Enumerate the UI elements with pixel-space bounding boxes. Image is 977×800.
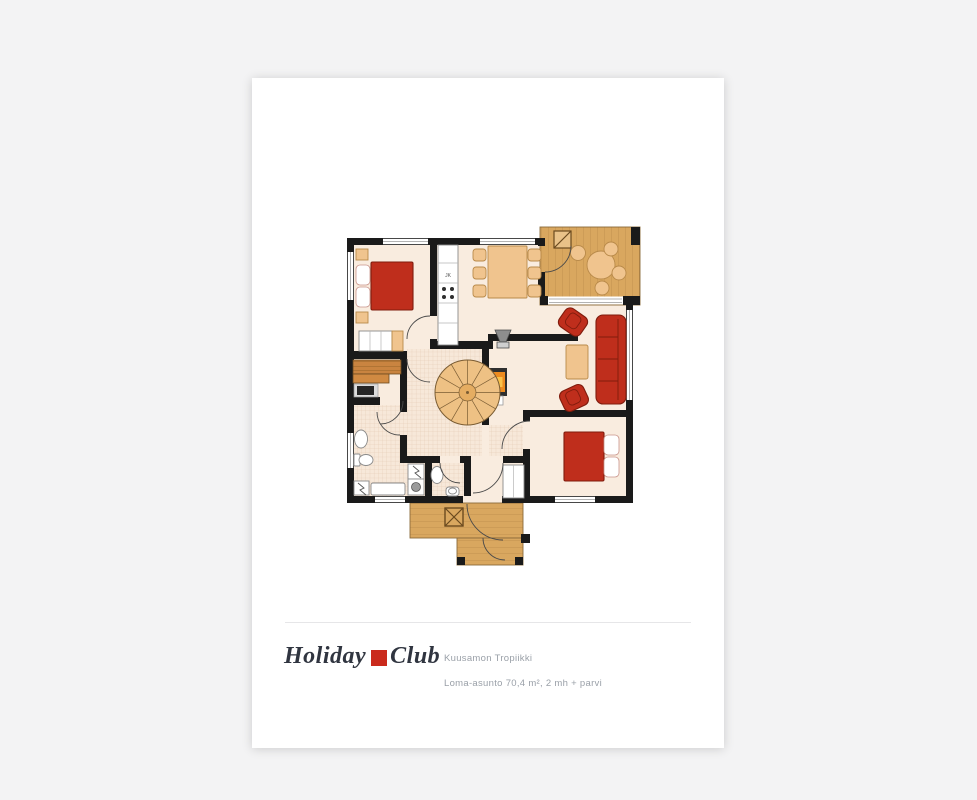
sauna-stove-icon <box>354 384 378 397</box>
entrance-deck <box>410 503 530 565</box>
bedside-table <box>356 312 368 323</box>
kitchen-counter <box>438 245 458 345</box>
terrace-storage-box-icon <box>554 231 571 248</box>
terrace <box>540 227 640 305</box>
plan-subtitle: Loma-asunto 70,4 m², 2 mh + parvi <box>444 678 602 689</box>
dining-table <box>488 246 527 298</box>
deck-column-icon <box>445 508 463 526</box>
vestibule-closet <box>503 465 524 498</box>
dining-chair <box>528 249 541 261</box>
terrace-glass-door <box>548 297 623 305</box>
logo-red-square-icon <box>371 650 387 666</box>
floor-plan-page: JK <box>252 78 724 748</box>
logo-word-holiday: Holiday <box>284 641 366 671</box>
dining-area <box>473 246 541 298</box>
canvas-background: { "colors": { "canvas-bg": "#f3f3f4", "p… <box>0 0 977 800</box>
water-heater-icon <box>354 481 369 495</box>
dining-chair <box>528 267 541 279</box>
window <box>348 433 353 468</box>
shower-bench <box>371 483 405 495</box>
plan-title: Kuusamon Tropiikki <box>444 653 532 664</box>
terrace-chair <box>612 266 626 280</box>
sofa <box>596 315 626 404</box>
terrace-post <box>631 227 640 245</box>
toilet <box>354 454 373 466</box>
window <box>627 310 632 400</box>
sauna-bench <box>353 360 401 374</box>
logo-word-club: Club <box>390 641 440 671</box>
holiday-club-logo: Holiday Club <box>284 641 440 671</box>
fridge-label: JK <box>445 273 452 279</box>
dining-chair <box>528 285 541 297</box>
dining-chair <box>473 249 486 261</box>
floor-plan: JK <box>345 222 645 567</box>
coffee-table <box>566 345 588 379</box>
washing-machine-icon <box>408 464 424 479</box>
terrace-chair <box>604 242 618 256</box>
window <box>348 252 353 300</box>
dining-chair <box>473 285 486 297</box>
window <box>383 239 428 244</box>
window <box>555 497 595 502</box>
bedside-table <box>356 249 368 260</box>
wardrobe <box>359 331 403 351</box>
sauna-bench <box>353 374 389 383</box>
dining-chair <box>473 267 486 279</box>
dryer-icon <box>408 479 424 495</box>
washbasin <box>355 430 368 448</box>
footer-divider <box>285 622 691 623</box>
terrace-chair <box>595 281 609 295</box>
spiral-staircase <box>435 360 500 425</box>
kitchen: JK <box>438 245 458 345</box>
window <box>375 497 405 502</box>
terrace-chair <box>571 246 586 261</box>
window <box>480 239 535 244</box>
wc-toilet <box>446 487 459 496</box>
